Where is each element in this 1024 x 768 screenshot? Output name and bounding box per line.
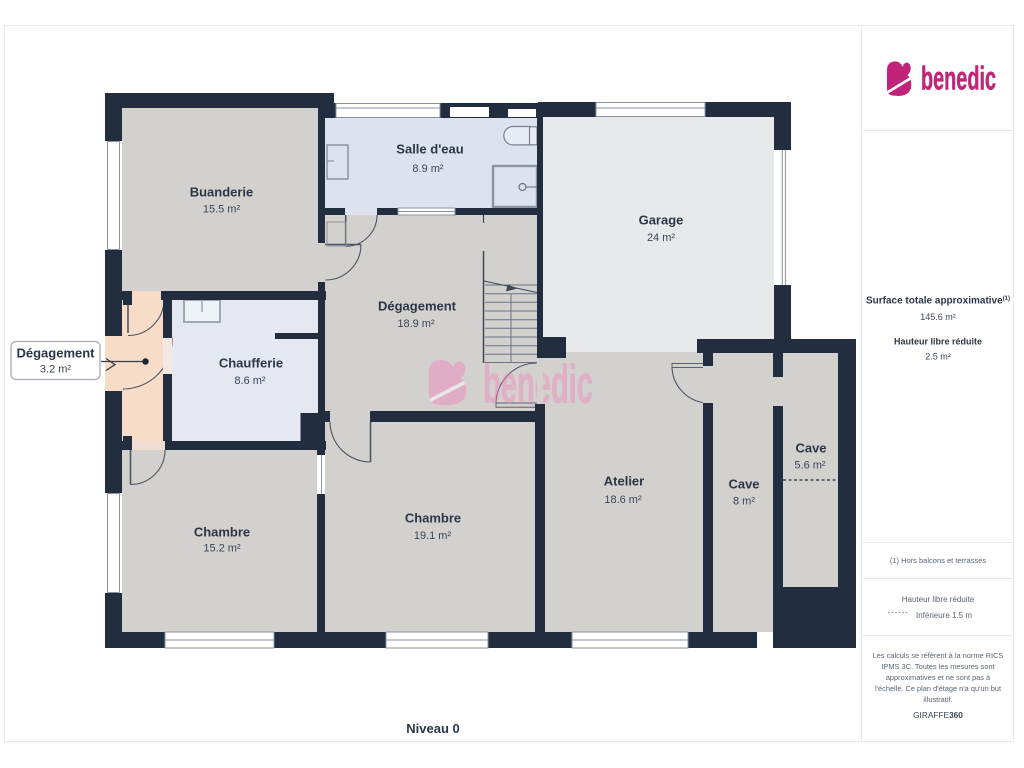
svg-text:Hauteur libre réduite: Hauteur libre réduite — [894, 337, 982, 347]
svg-text:Dégagement: Dégagement — [378, 299, 457, 314]
svg-text:l'échelle. Ce plan d'étage n'a: l'échelle. Ce plan d'étage n'a qu'un but — [875, 684, 1001, 693]
svg-text:Buanderie: Buanderie — [190, 185, 254, 200]
svg-text:8.6 m²: 8.6 m² — [234, 375, 266, 387]
svg-text:Chambre: Chambre — [405, 511, 461, 526]
svg-text:2.5 m²: 2.5 m² — [925, 352, 951, 362]
svg-text:Niveau 0: Niveau 0 — [406, 721, 459, 736]
svg-text:benedic: benedic — [921, 60, 996, 97]
svg-text:Inférieure 1.5 m: Inférieure 1.5 m — [916, 611, 972, 620]
svg-text:24 m²: 24 m² — [647, 232, 675, 244]
svg-text:3.2 m²: 3.2 m² — [40, 364, 72, 376]
svg-text:18.6 m²: 18.6 m² — [604, 494, 642, 506]
svg-text:8 m²: 8 m² — [733, 496, 755, 508]
svg-text:Atelier: Atelier — [604, 474, 644, 489]
svg-text:Chambre: Chambre — [194, 525, 250, 540]
svg-text:145.6 m²: 145.6 m² — [920, 312, 956, 322]
svg-text:GIRAFFE360: GIRAFFE360 — [913, 710, 963, 720]
svg-text:Salle d'eau: Salle d'eau — [396, 142, 463, 157]
svg-text:Cave: Cave — [728, 477, 759, 492]
svg-text:Hauteur libre réduite: Hauteur libre réduite — [902, 595, 975, 604]
svg-text:18.9 m²: 18.9 m² — [397, 318, 435, 330]
svg-text:approximatives et ne sont pas: approximatives et ne sont pas à — [886, 673, 991, 682]
svg-text:Chaufferie: Chaufferie — [219, 356, 283, 371]
svg-text:19.1 m²: 19.1 m² — [414, 530, 452, 542]
svg-text:IPMS 3C. Toutes les mesures so: IPMS 3C. Toutes les mesures sont — [881, 662, 994, 671]
svg-text:Cave: Cave — [795, 441, 826, 456]
svg-text:Surface totale approximative(1: Surface totale approximative(1) — [866, 296, 1010, 307]
svg-text:8.9 m²: 8.9 m² — [412, 163, 444, 175]
svg-text:Garage: Garage — [639, 213, 684, 228]
svg-text:Dégagement: Dégagement — [16, 346, 95, 361]
svg-text:illustratif.: illustratif. — [923, 695, 952, 704]
svg-text:15.2 m²: 15.2 m² — [203, 543, 241, 555]
svg-text:5.6 m²: 5.6 m² — [794, 460, 826, 472]
svg-text:(1) Hors balcons et terrasses: (1) Hors balcons et terrasses — [890, 556, 987, 565]
svg-text:Les calculs se réfèrent à la n: Les calculs se réfèrent à la norme RICS — [873, 651, 1004, 660]
svg-text:15.5 m²: 15.5 m² — [203, 204, 241, 216]
